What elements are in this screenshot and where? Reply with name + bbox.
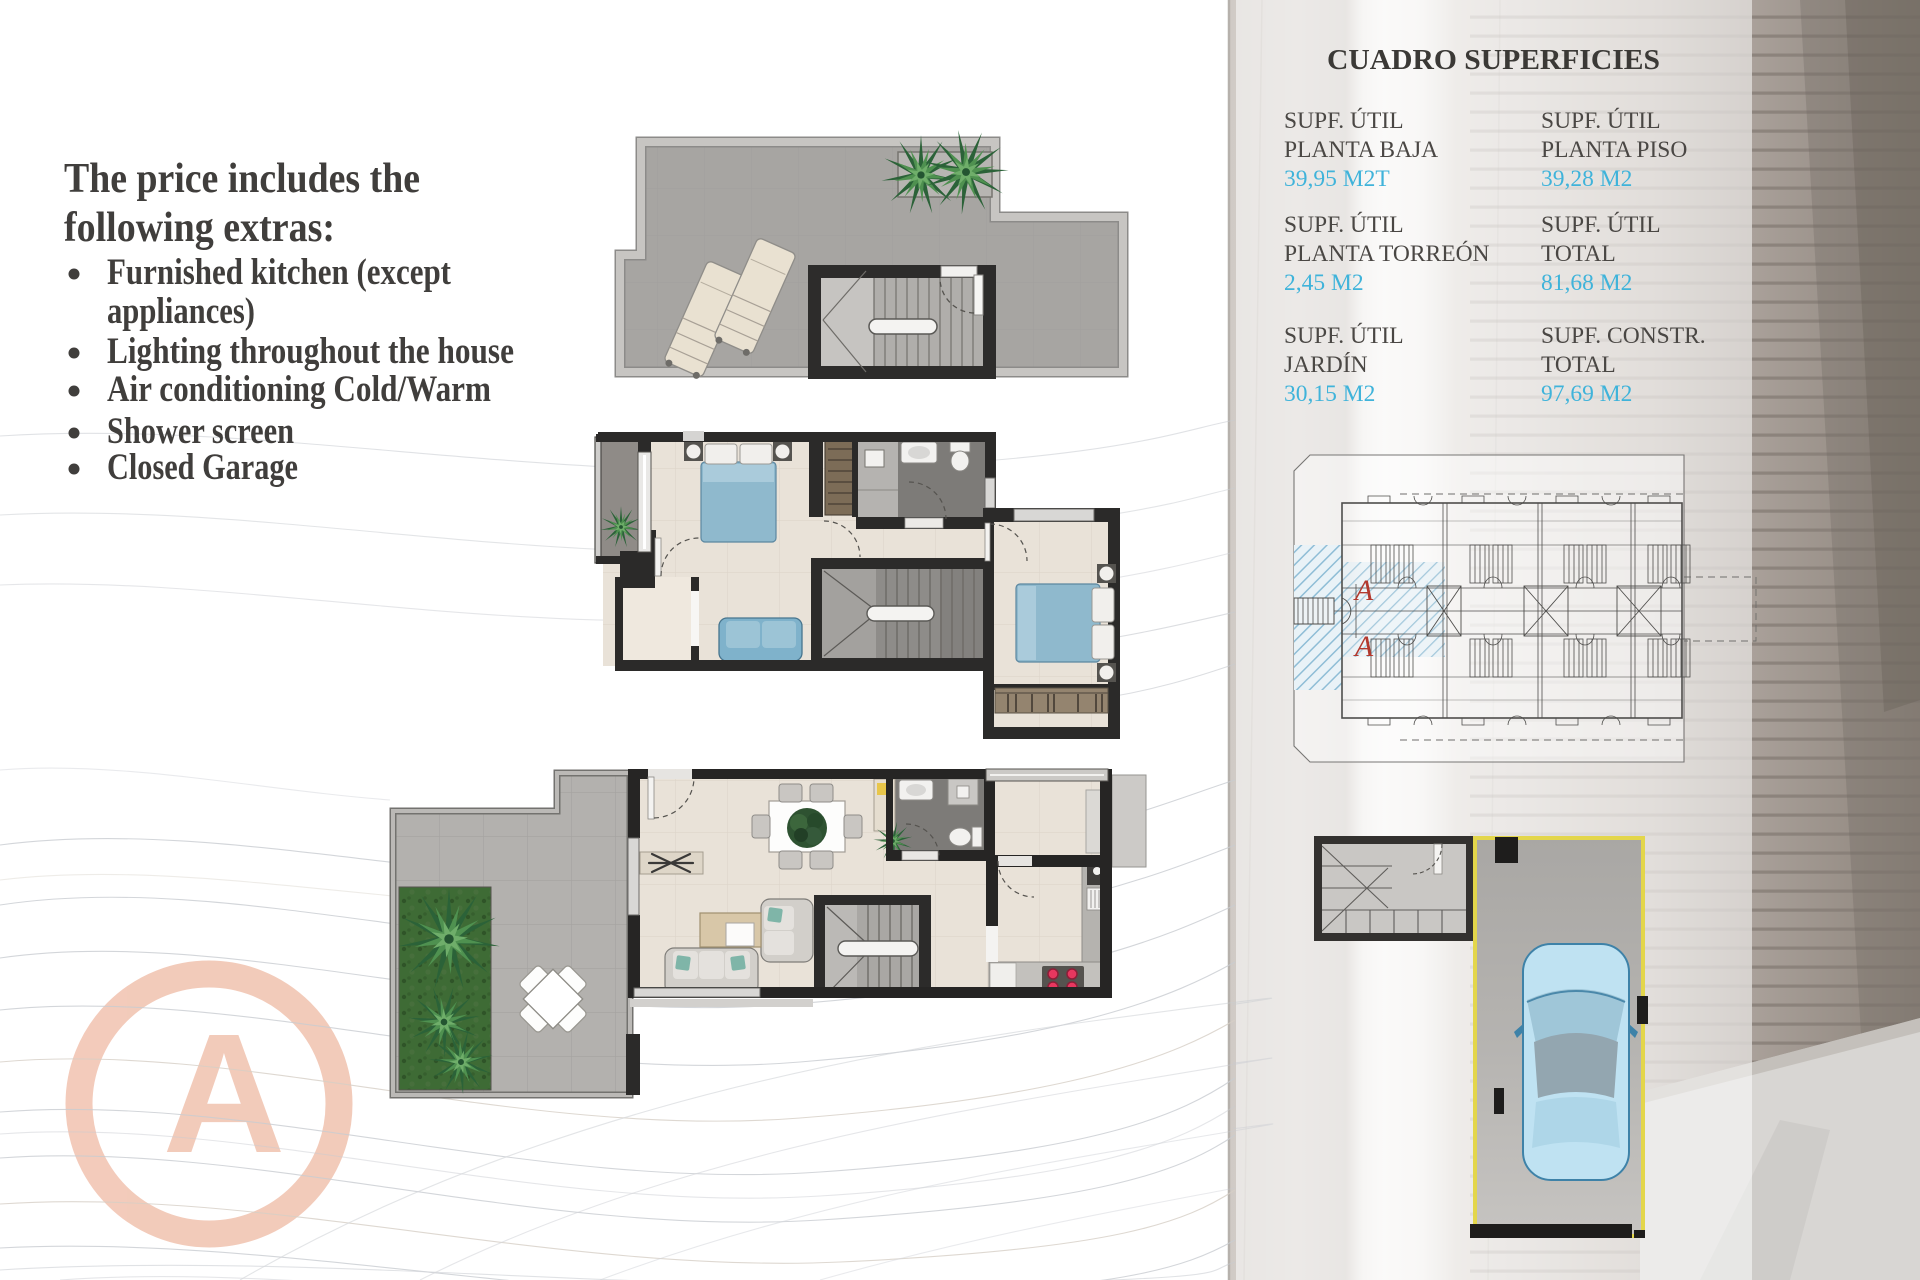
svg-text:SUPF. ÚTIL: SUPF. ÚTIL <box>1541 107 1661 134</box>
svg-text:CUADRO SUPERFICIES: CUADRO SUPERFICIES <box>1327 45 1660 76</box>
svg-text:Furnished kitchen (except: Furnished kitchen (except <box>107 252 452 293</box>
svg-text:30,15 M2: 30,15 M2 <box>1284 381 1375 407</box>
svg-text:97,69 M2: 97,69 M2 <box>1541 381 1632 407</box>
svg-text:Closed Garage: Closed Garage <box>107 447 298 488</box>
svg-text:81,68 M2: 81,68 M2 <box>1541 270 1632 296</box>
svg-text:39,28 M2: 39,28 M2 <box>1541 166 1632 192</box>
svg-text:PLANTA TORREÓN: PLANTA TORREÓN <box>1284 240 1490 267</box>
svg-text:SUPF. ÚTIL: SUPF. ÚTIL <box>1284 211 1404 238</box>
svg-text:Shower screen: Shower screen <box>107 411 294 452</box>
svg-text:2,45 M2: 2,45 M2 <box>1284 270 1364 296</box>
svg-text:following extras:: following extras: <box>64 205 335 251</box>
svg-text:PLANTA PISO: PLANTA PISO <box>1541 137 1687 163</box>
svg-text:TOTAL: TOTAL <box>1541 241 1616 267</box>
svg-text:A: A <box>1353 574 1374 607</box>
svg-text:Air conditioning Cold/Warm: Air conditioning Cold/Warm <box>107 369 491 410</box>
svg-text:A: A <box>163 999 286 1189</box>
svg-text:appliances): appliances) <box>107 291 255 332</box>
svg-text:A: A <box>1353 630 1374 663</box>
svg-text:39,95 M2T: 39,95 M2T <box>1284 166 1390 192</box>
svg-text:SUPF. CONSTR.: SUPF. CONSTR. <box>1541 323 1706 349</box>
svg-text:Lighting throughout the house: Lighting throughout the house <box>107 331 514 372</box>
svg-text:The price includes the: The price includes the <box>64 156 420 202</box>
svg-text:SUPF. ÚTIL: SUPF. ÚTIL <box>1284 322 1404 349</box>
svg-text:PLANTA BAJA: PLANTA BAJA <box>1284 137 1438 163</box>
svg-text:TOTAL: TOTAL <box>1541 352 1616 378</box>
svg-text:SUPF. ÚTIL: SUPF. ÚTIL <box>1284 107 1404 134</box>
svg-text:JARDÍN: JARDÍN <box>1284 352 1368 378</box>
svg-text:SUPF. ÚTIL: SUPF. ÚTIL <box>1541 211 1661 238</box>
